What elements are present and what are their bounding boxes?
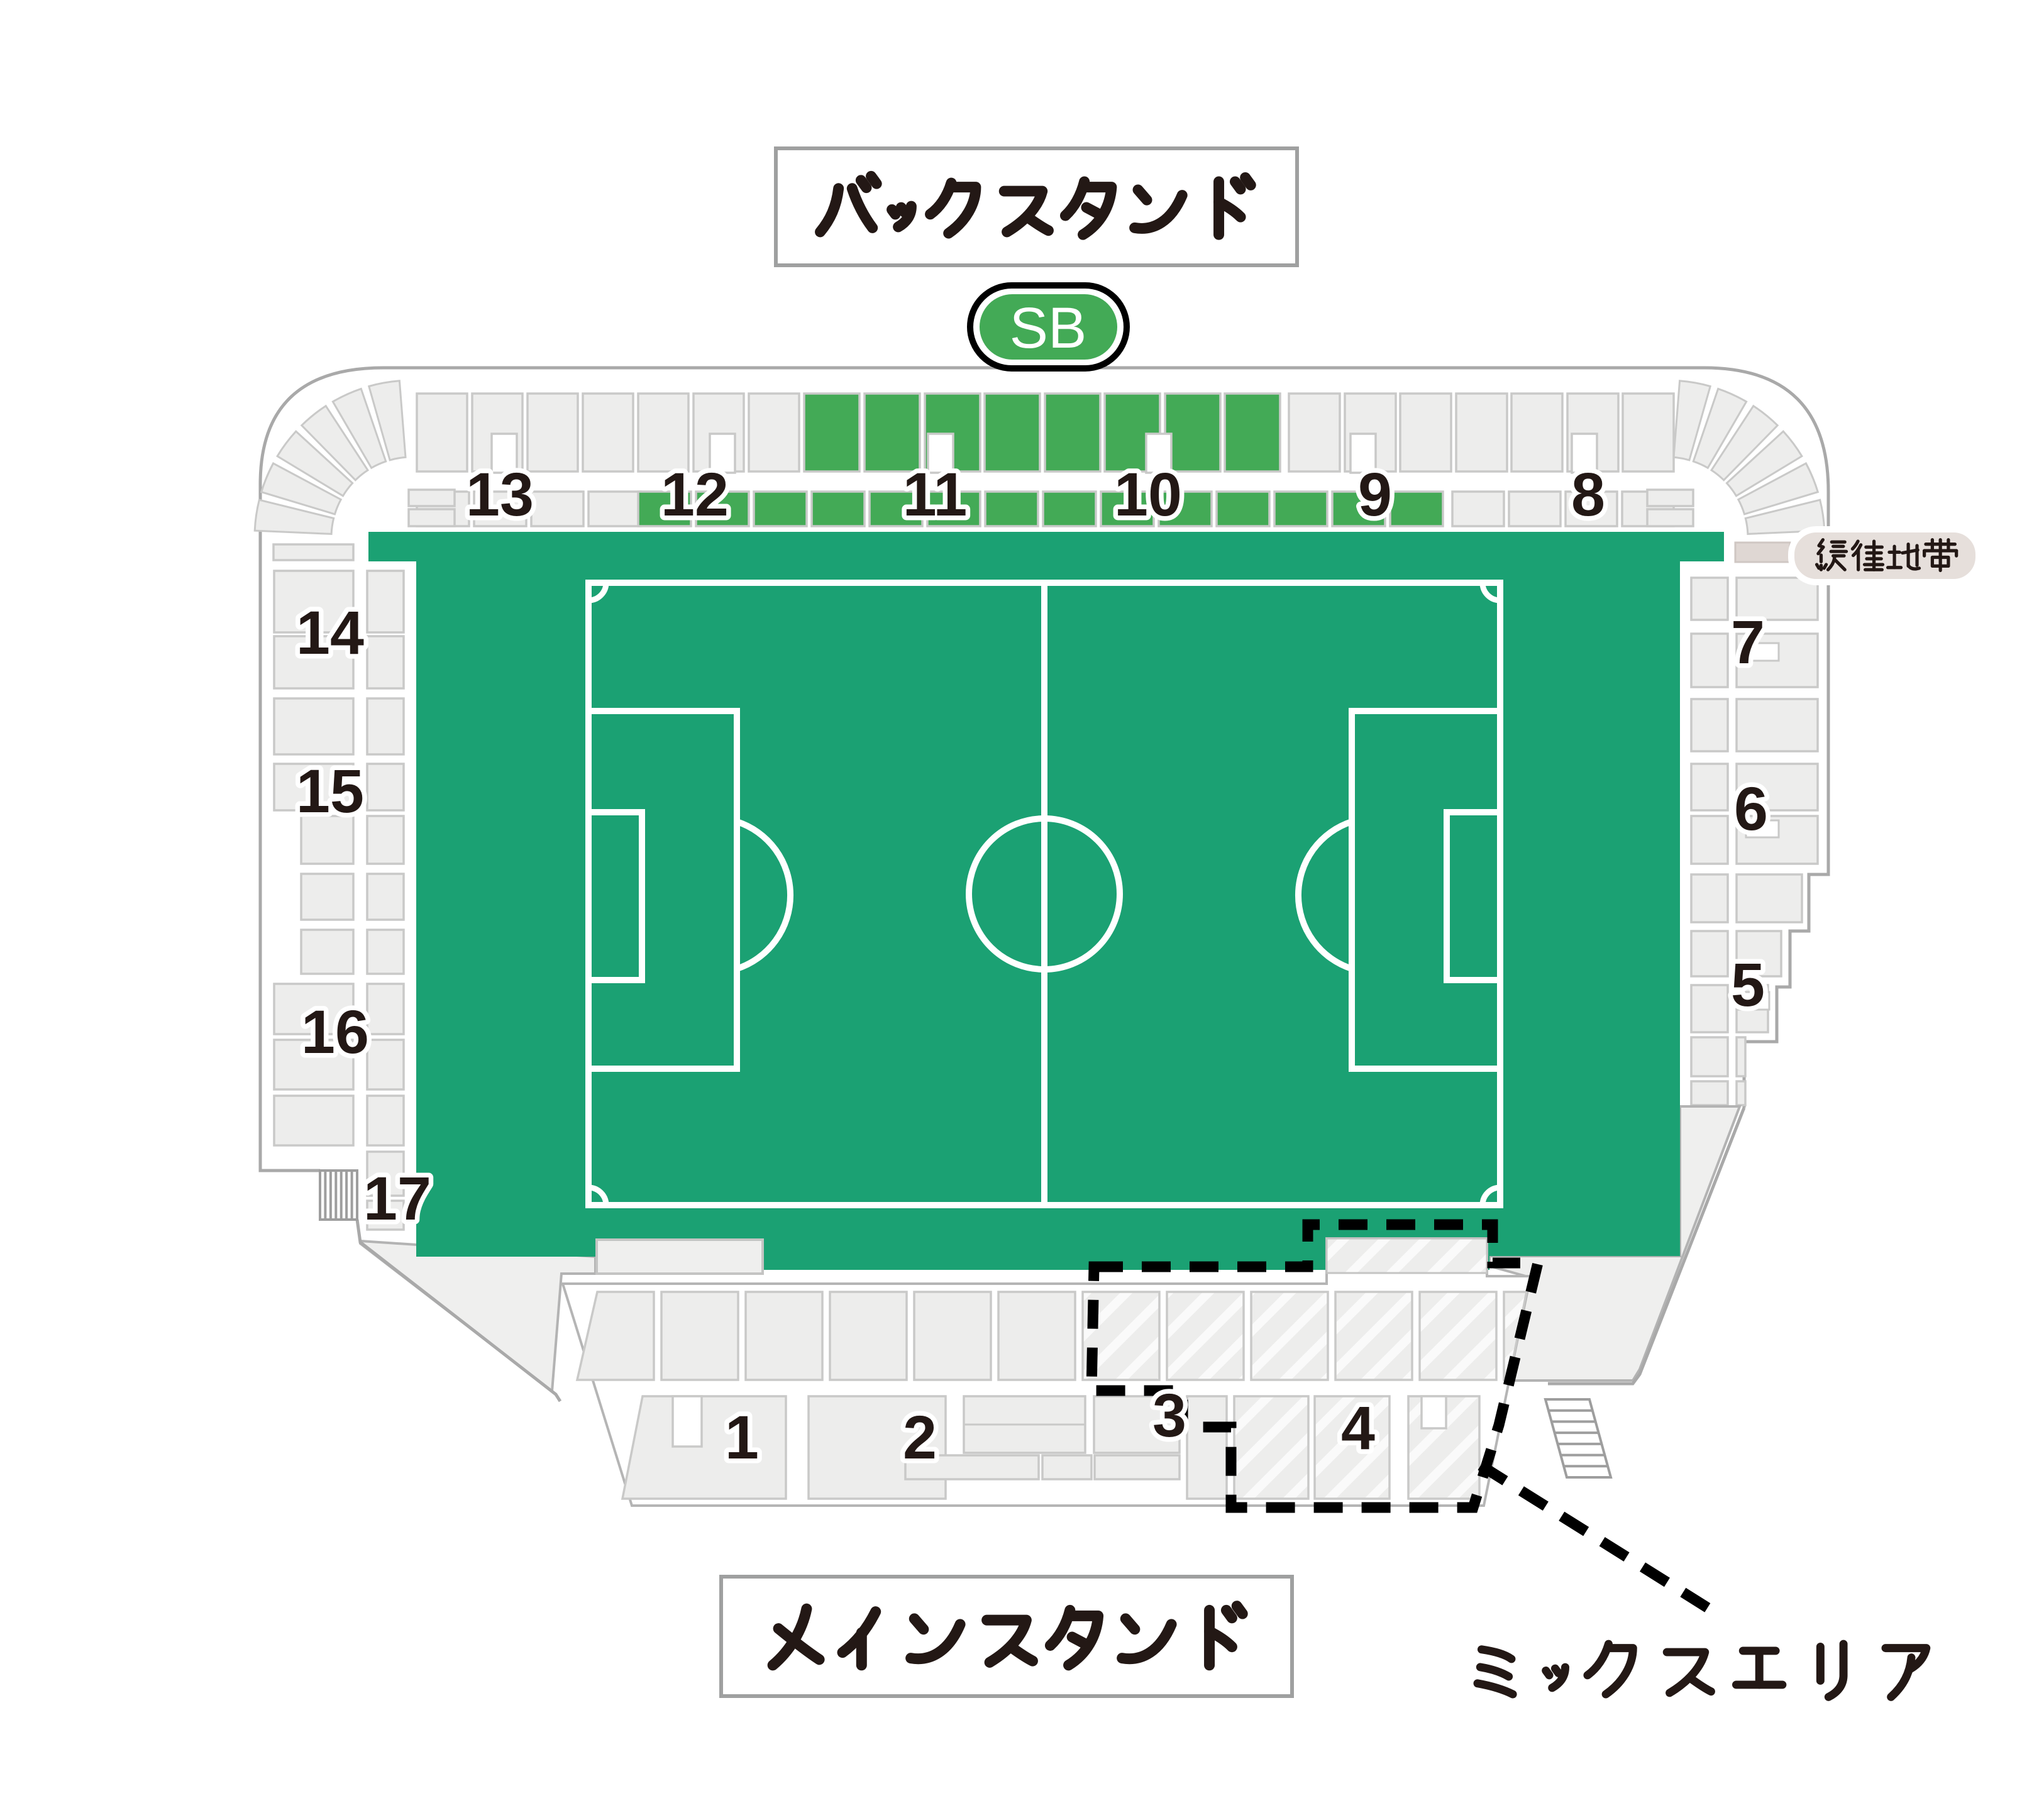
svg-text:11: 11 [903, 460, 968, 529]
svg-text:2: 2 [903, 1403, 937, 1472]
svg-text:SB: SB [1010, 296, 1087, 360]
svg-text:3: 3 [1152, 1381, 1186, 1450]
svg-text:7: 7 [1731, 608, 1765, 676]
svg-text:12: 12 [661, 460, 729, 529]
svg-text:17: 17 [363, 1164, 431, 1233]
svg-text:9: 9 [1358, 460, 1392, 529]
svg-text:6: 6 [1734, 774, 1768, 843]
svg-text:8: 8 [1571, 460, 1605, 529]
svg-text:14: 14 [296, 598, 364, 667]
svg-text:10: 10 [1114, 460, 1182, 529]
svg-text:5: 5 [1731, 951, 1765, 1019]
svg-text:1: 1 [725, 1403, 759, 1472]
svg-text:4: 4 [1341, 1394, 1375, 1462]
svg-text:13: 13 [466, 460, 534, 529]
svg-text:15: 15 [296, 757, 364, 825]
svg-text:16: 16 [301, 998, 369, 1066]
